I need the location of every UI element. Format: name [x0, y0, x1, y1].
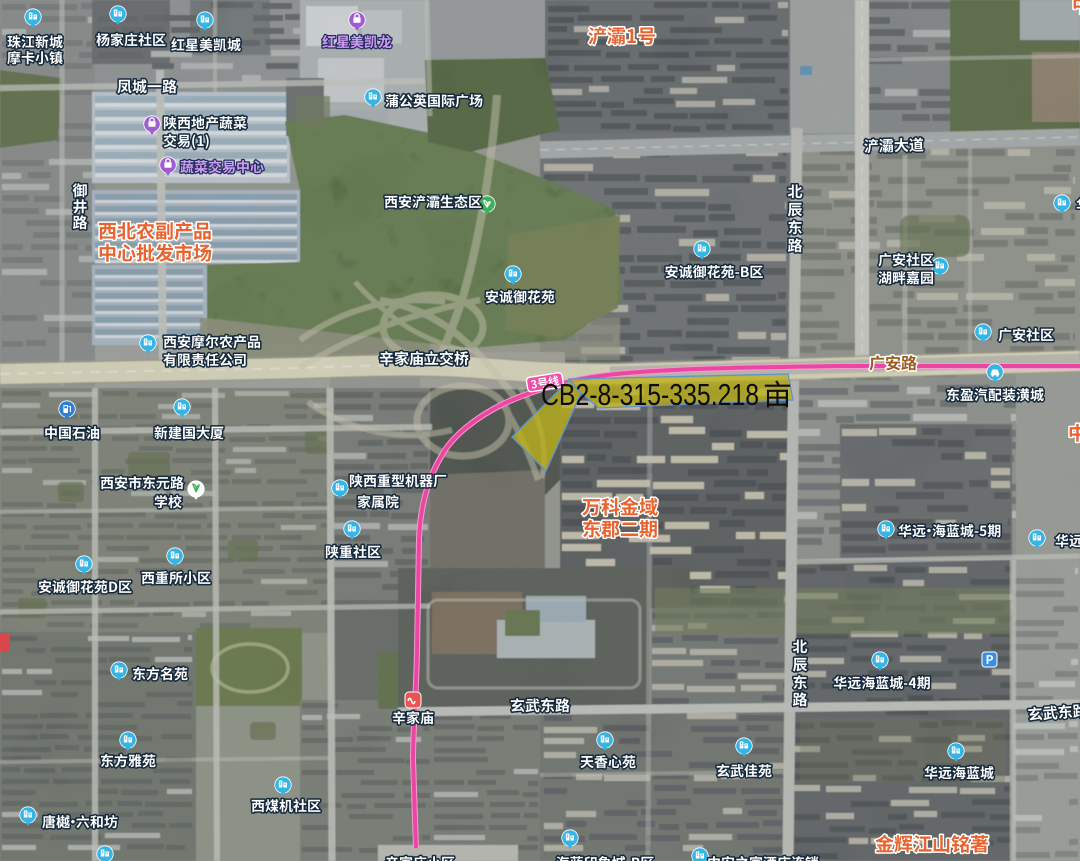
svg-text:CB2-8-315-335.218: CB2-8-315-335.218	[541, 377, 759, 412]
